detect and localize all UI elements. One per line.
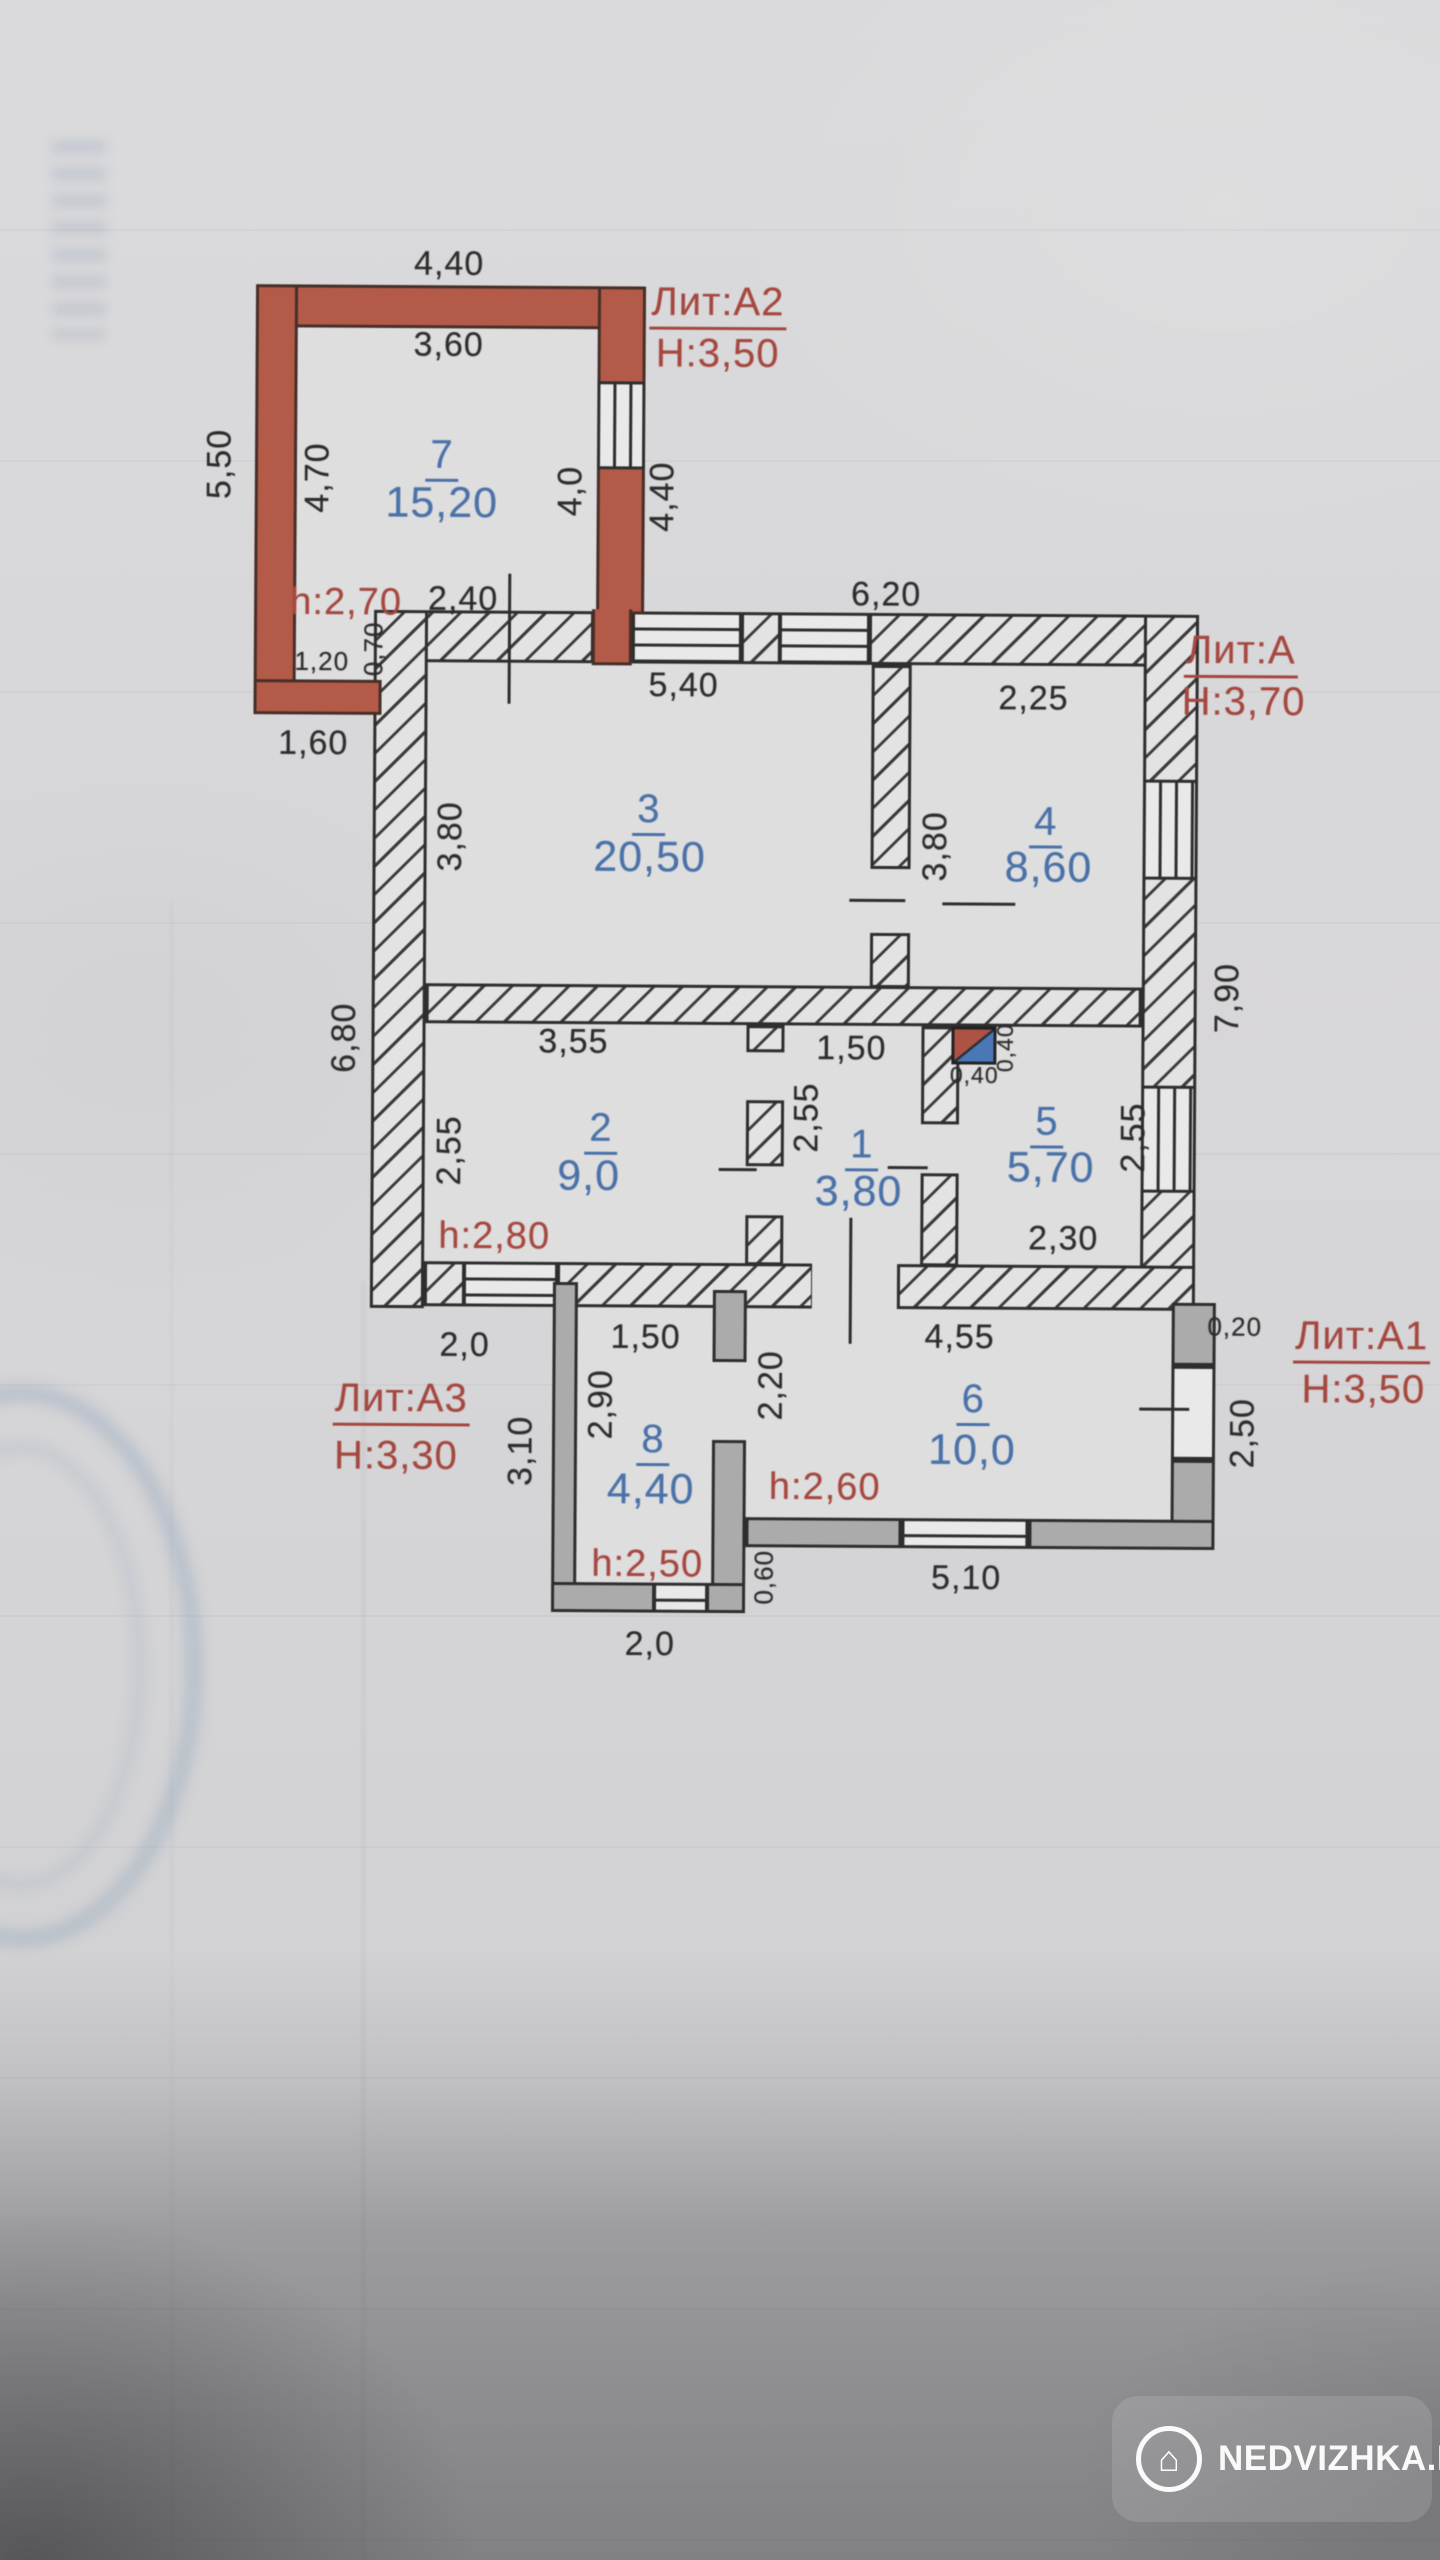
room-2-area: 9,0 (557, 1152, 620, 1201)
ceiling-height-room6: h:2,60 (769, 1466, 881, 1510)
stove-symbol (951, 1026, 996, 1064)
window-a1-right (1171, 1366, 1216, 1460)
dim-label: 2,55 (787, 1082, 826, 1152)
dim-label: 3,60 (413, 326, 483, 365)
window-a2-right (597, 381, 646, 469)
dim-label: 2,40 (428, 580, 498, 619)
dim-label: 4,70 (298, 442, 337, 512)
dim-label: 2,55 (430, 1115, 469, 1185)
wall-a3-bottom-right (706, 1583, 745, 1613)
wall-a1-bottom-right (1028, 1519, 1214, 1550)
door-tick-room3-room4 (849, 899, 905, 902)
dim-tick (1139, 1408, 1189, 1411)
room-4-area: 8,60 (1005, 843, 1093, 893)
wall-bottom-1 (424, 1261, 465, 1306)
dim-label: 5,40 (648, 666, 718, 705)
room-7-number: 7 (425, 433, 459, 482)
dim-label: 2,20 (752, 1350, 791, 1420)
dim-label: 4,40 (643, 461, 682, 531)
wall-room2-hall-1 (746, 1025, 784, 1052)
dim-label: 3,55 (538, 1022, 608, 1061)
room-8-number: 8 (636, 1417, 670, 1466)
room-6-area: 10,0 (928, 1426, 1016, 1476)
wall-a3-left (551, 1282, 578, 1612)
window-right-room4 (1142, 780, 1198, 880)
liter-a3-height: Н:3,30 (334, 1433, 458, 1479)
wall-a2-top (256, 284, 646, 329)
room-1-area: 3,80 (815, 1167, 903, 1217)
window-bottom-room2 (463, 1261, 558, 1307)
dim-label: 2,30 (1028, 1219, 1098, 1258)
wall-top-pier (741, 612, 781, 664)
dim-label: 3,80 (431, 801, 470, 871)
wall-room3-room4-upper (871, 665, 912, 869)
dim-label: 5,50 (200, 429, 239, 499)
room-8-area: 4,40 (607, 1465, 695, 1515)
ceiling-height-room8: h:2,50 (591, 1543, 703, 1587)
window-a1-bottom (901, 1518, 1028, 1549)
dim-label: 2,50 (1223, 1398, 1262, 1468)
liter-a1-label: Лит:А1 (1293, 1314, 1430, 1365)
dim-label: 6,20 (851, 575, 921, 614)
liter-a2-height: Н:3,50 (656, 331, 780, 377)
dim-label: 3,80 (916, 811, 955, 881)
wall-a2-left (253, 284, 298, 714)
ceiling-height-room7: h:2,70 (290, 581, 402, 625)
liter-a2-label: Лит:А2 (649, 280, 786, 331)
room-5-number: 5 (1030, 1099, 1064, 1148)
dim-label: 0,20 (1207, 1311, 1262, 1342)
dim-label: 3,10 (501, 1416, 540, 1486)
room-6-number: 6 (956, 1377, 990, 1426)
ceiling-height-room2: h:2,80 (438, 1215, 550, 1259)
window-top-1 (632, 611, 742, 664)
wall-a3-bottom-left (551, 1582, 655, 1613)
dim-label: 4,55 (924, 1318, 994, 1357)
wall-room3-room4-lower (870, 933, 910, 988)
door-a3-bottom (653, 1583, 708, 1613)
door-tick-room2-hall (719, 1168, 757, 1171)
dim-label: 1,20 (294, 646, 349, 677)
watermark-text: NEDVIZHKA.KZ (1218, 2439, 1440, 2479)
room-2-number: 2 (584, 1106, 618, 1155)
liter-a-label: Лит:А (1184, 628, 1298, 679)
wall-bottom-3 (897, 1264, 1195, 1311)
scanned-floor-plan-photo: 4,40 3,60 2,40 1,20 1,60 6,20 5,40 2,25 … (0, 0, 1440, 2560)
dim-label: 7,90 (1208, 963, 1247, 1033)
wall-a2-right-stub (592, 609, 632, 665)
dim-label: 2,0 (625, 1625, 676, 1664)
wall-a2-bottom (253, 679, 381, 715)
liter-a1-height: Н:3,50 (1301, 1367, 1425, 1413)
watermark-badge: ⌂ NEDVIZHKA.KZ (1112, 2396, 1432, 2522)
wall-middle-horizontal (426, 983, 1142, 1027)
dim-label: 0,60 (749, 1550, 780, 1605)
dim-label: 1,50 (816, 1029, 886, 1068)
room-5-area: 5,70 (1007, 1143, 1095, 1193)
liter-a3-label: Лит:А3 (333, 1376, 470, 1427)
liter-a-height: Н:3,70 (1181, 679, 1305, 725)
dim-label: 5,10 (931, 1559, 1001, 1598)
room-3-number: 3 (632, 787, 666, 836)
room-3-area: 20,50 (593, 833, 706, 883)
dim-label: 2,0 (439, 1326, 490, 1365)
room-7-area: 15,20 (385, 478, 498, 528)
dim-label: 6,80 (325, 1002, 364, 1072)
dim-label: 2,90 (582, 1369, 621, 1439)
window-top-2 (779, 612, 870, 665)
room-4-number: 4 (1029, 799, 1063, 848)
wall-room2-hall-2 (746, 1100, 784, 1166)
room-1-number: 1 (845, 1122, 879, 1171)
dim-label: 4,0 (551, 466, 590, 517)
wall-hall-room5-2 (920, 1173, 959, 1266)
dim-label: 4,40 (414, 245, 484, 284)
floor-plan-drawing: 4,40 3,60 2,40 1,20 1,60 6,20 5,40 2,25 … (0, 0, 1440, 2560)
dim-label: 1,50 (610, 1318, 680, 1357)
dim-label: 0,40 (992, 1023, 1019, 1072)
dim-label: 1,60 (278, 724, 348, 763)
door-opening-room8-room6 (712, 1362, 746, 1440)
dim-label: 2,25 (998, 679, 1068, 718)
dim-tick (942, 902, 1015, 905)
door-opening-room1-room6 (812, 1264, 897, 1310)
dim-label: 0,70 (358, 621, 389, 676)
wall-a1-bottom-left (745, 1517, 901, 1548)
dim-label: 2,55 (1114, 1102, 1153, 1172)
wall-a3-right-upper (712, 1290, 746, 1362)
wall-room2-hall-3 (745, 1215, 783, 1265)
house-icon: ⌂ (1136, 2426, 1202, 2492)
wall-bottom-2 (557, 1262, 814, 1309)
